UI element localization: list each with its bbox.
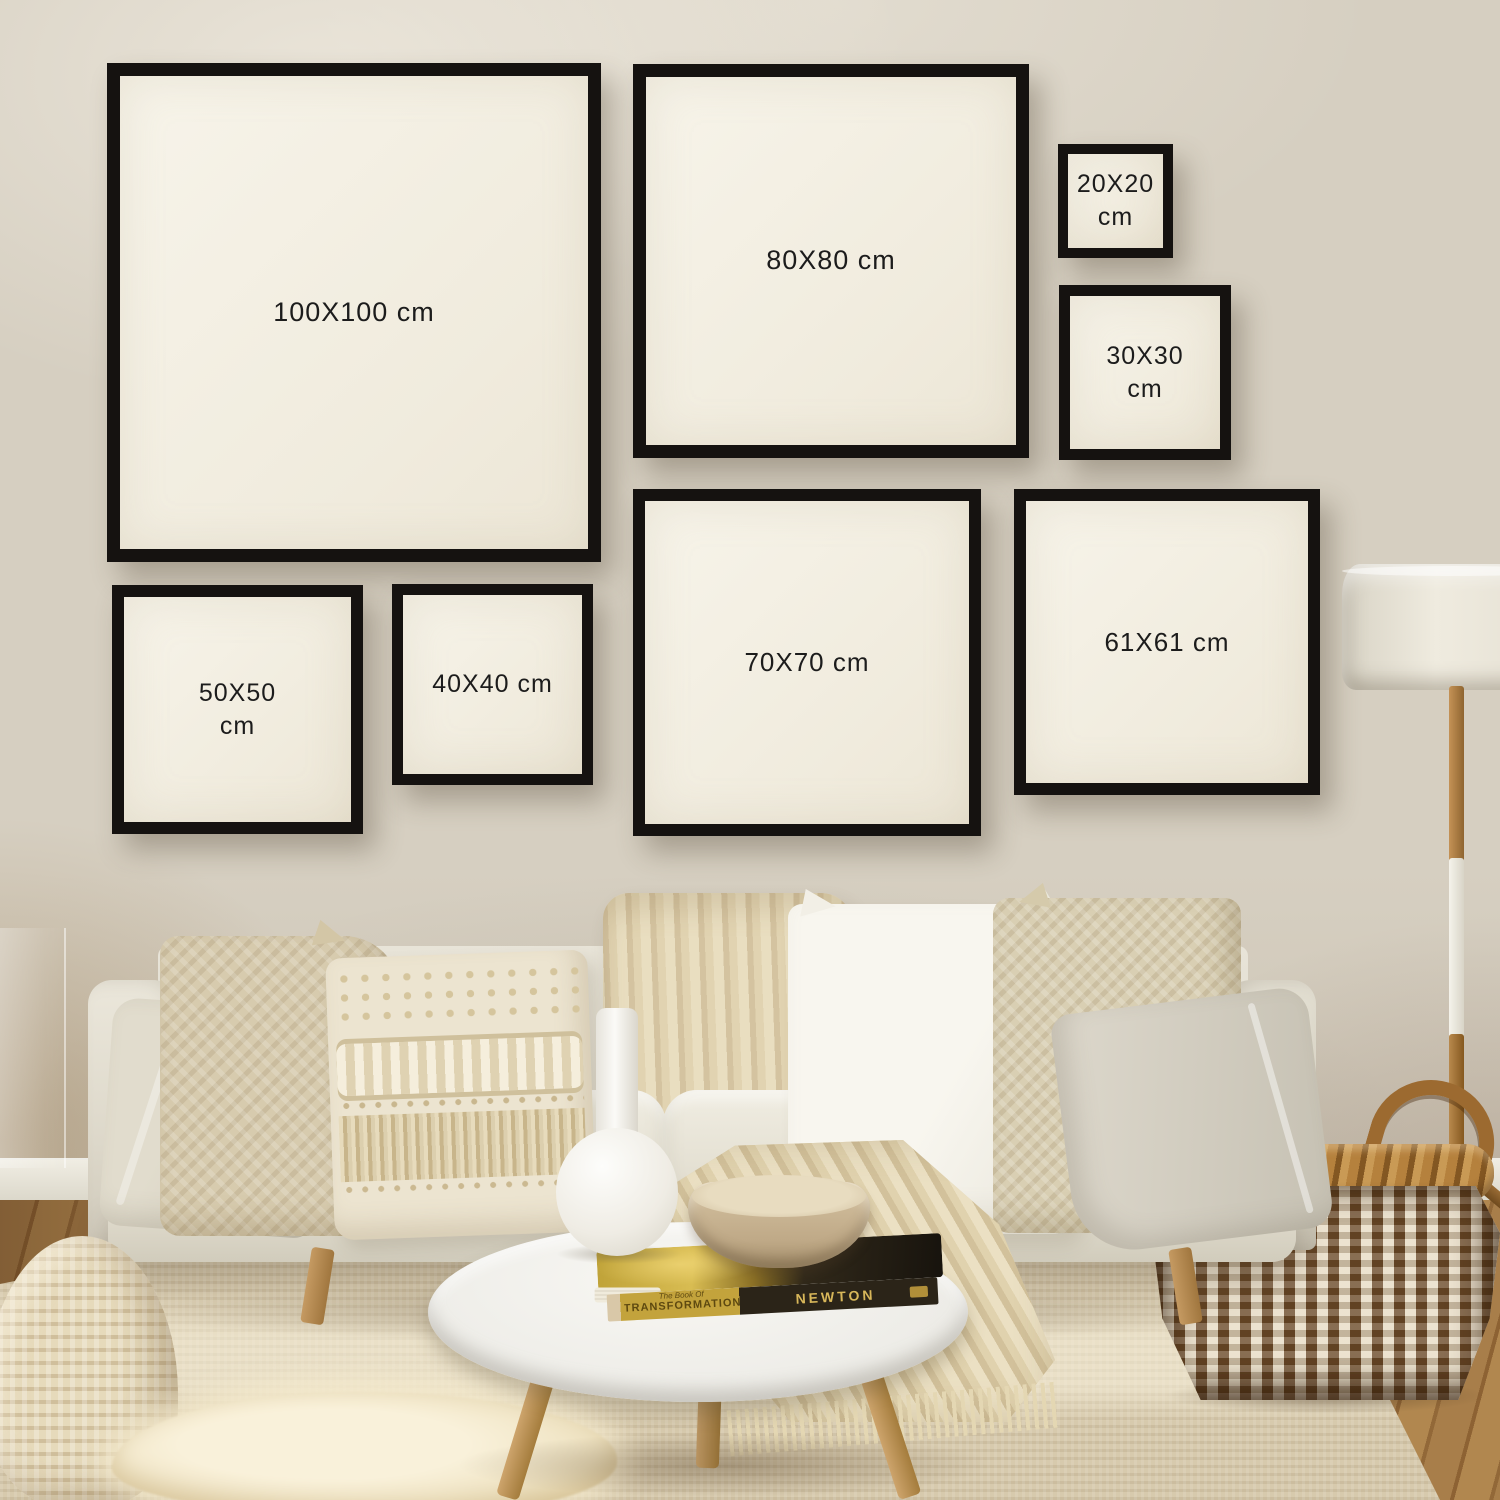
frame-size-label: 40X40 cm [432, 668, 553, 701]
frame-size-text: 70X70 cm [744, 645, 869, 679]
white-vase-body [556, 1128, 678, 1256]
publisher-logo-icon [910, 1286, 929, 1298]
frame-size-label: 100X100 cm [273, 295, 435, 331]
pillow-leaning-right [1049, 985, 1335, 1257]
floor-lamp-pole-wood-upper [1449, 686, 1464, 862]
frame-size-unit: cm [1077, 201, 1154, 234]
frame-size-text: 61X61 cm [1104, 625, 1229, 659]
frame-61x61: 61X61 cm [1014, 489, 1320, 795]
frame-size-text: 40X40 cm [432, 668, 553, 701]
frame-size-unit: cm [1106, 373, 1183, 406]
floor-lamp-pole-white [1449, 858, 1464, 1038]
frame-size-label: 80X80 cm [766, 243, 896, 279]
pillow-braid-band [333, 962, 581, 1029]
book-spine-title: NEWTON [779, 1286, 892, 1308]
frame-size-text: 20X20 [1077, 168, 1154, 201]
frame-size-label: 20X20 cm [1077, 168, 1154, 234]
frame-size-label: 50X50 cm [199, 677, 276, 743]
frame-size-label: 30X30 cm [1106, 340, 1183, 406]
frame-size-unit: cm [199, 710, 276, 743]
frame-50x50: 50X50 cm [112, 585, 363, 834]
frame-100x100: 100X100 cm [107, 63, 601, 562]
frame-70x70: 70X70 cm [633, 489, 981, 836]
glass-panel-reflection [0, 928, 66, 1168]
pillow-fluff-band [336, 1036, 584, 1097]
frame-size-label: 61X61 cm [1104, 625, 1229, 659]
floor-lamp-shade [1342, 564, 1500, 690]
frame-size-label: 70X70 cm [744, 645, 869, 679]
frame-40x40: 40X40 cm [392, 584, 593, 785]
frame-30x30: 30X30 cm [1059, 285, 1231, 460]
living-room-scene: 100X100 cm 80X80 cm 20X20 cm 30X30 cm 50… [0, 0, 1500, 1500]
frame-80x80: 80X80 cm [633, 64, 1029, 458]
pillow-fringe-band [339, 1108, 587, 1183]
frame-20x20: 20X20 cm [1058, 144, 1173, 258]
book-edge-text: The Book Of TRANSFORMATION [623, 1288, 740, 1321]
frame-size-text: 50X50 [199, 677, 276, 710]
frame-size-text: 100X100 cm [273, 295, 435, 331]
ceramic-bowl [688, 1182, 870, 1268]
frame-size-text: 80X80 cm [766, 243, 896, 279]
bowl-interior [692, 1175, 867, 1217]
frame-size-text: 30X30 [1106, 340, 1183, 373]
